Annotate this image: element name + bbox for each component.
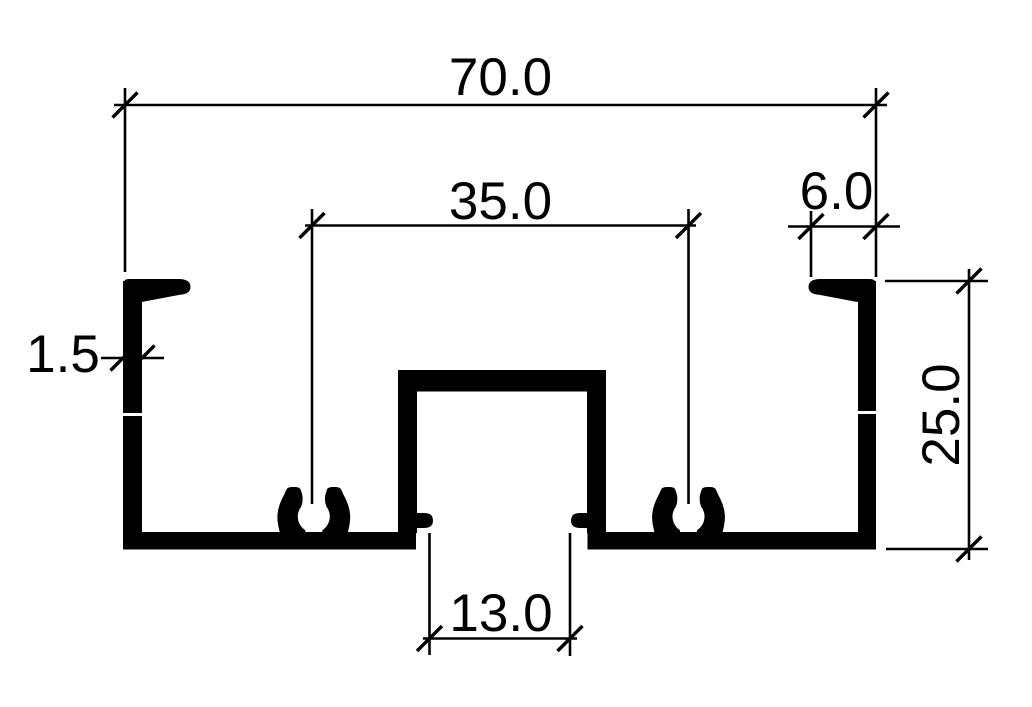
svg-text:13.0: 13.0: [449, 584, 552, 643]
svg-text:35.0: 35.0: [449, 172, 552, 231]
svg-text:25.0: 25.0: [912, 363, 971, 466]
svg-text:6.0: 6.0: [800, 162, 874, 221]
svg-text:1.5: 1.5: [26, 325, 100, 384]
svg-text:70.0: 70.0: [449, 48, 552, 107]
